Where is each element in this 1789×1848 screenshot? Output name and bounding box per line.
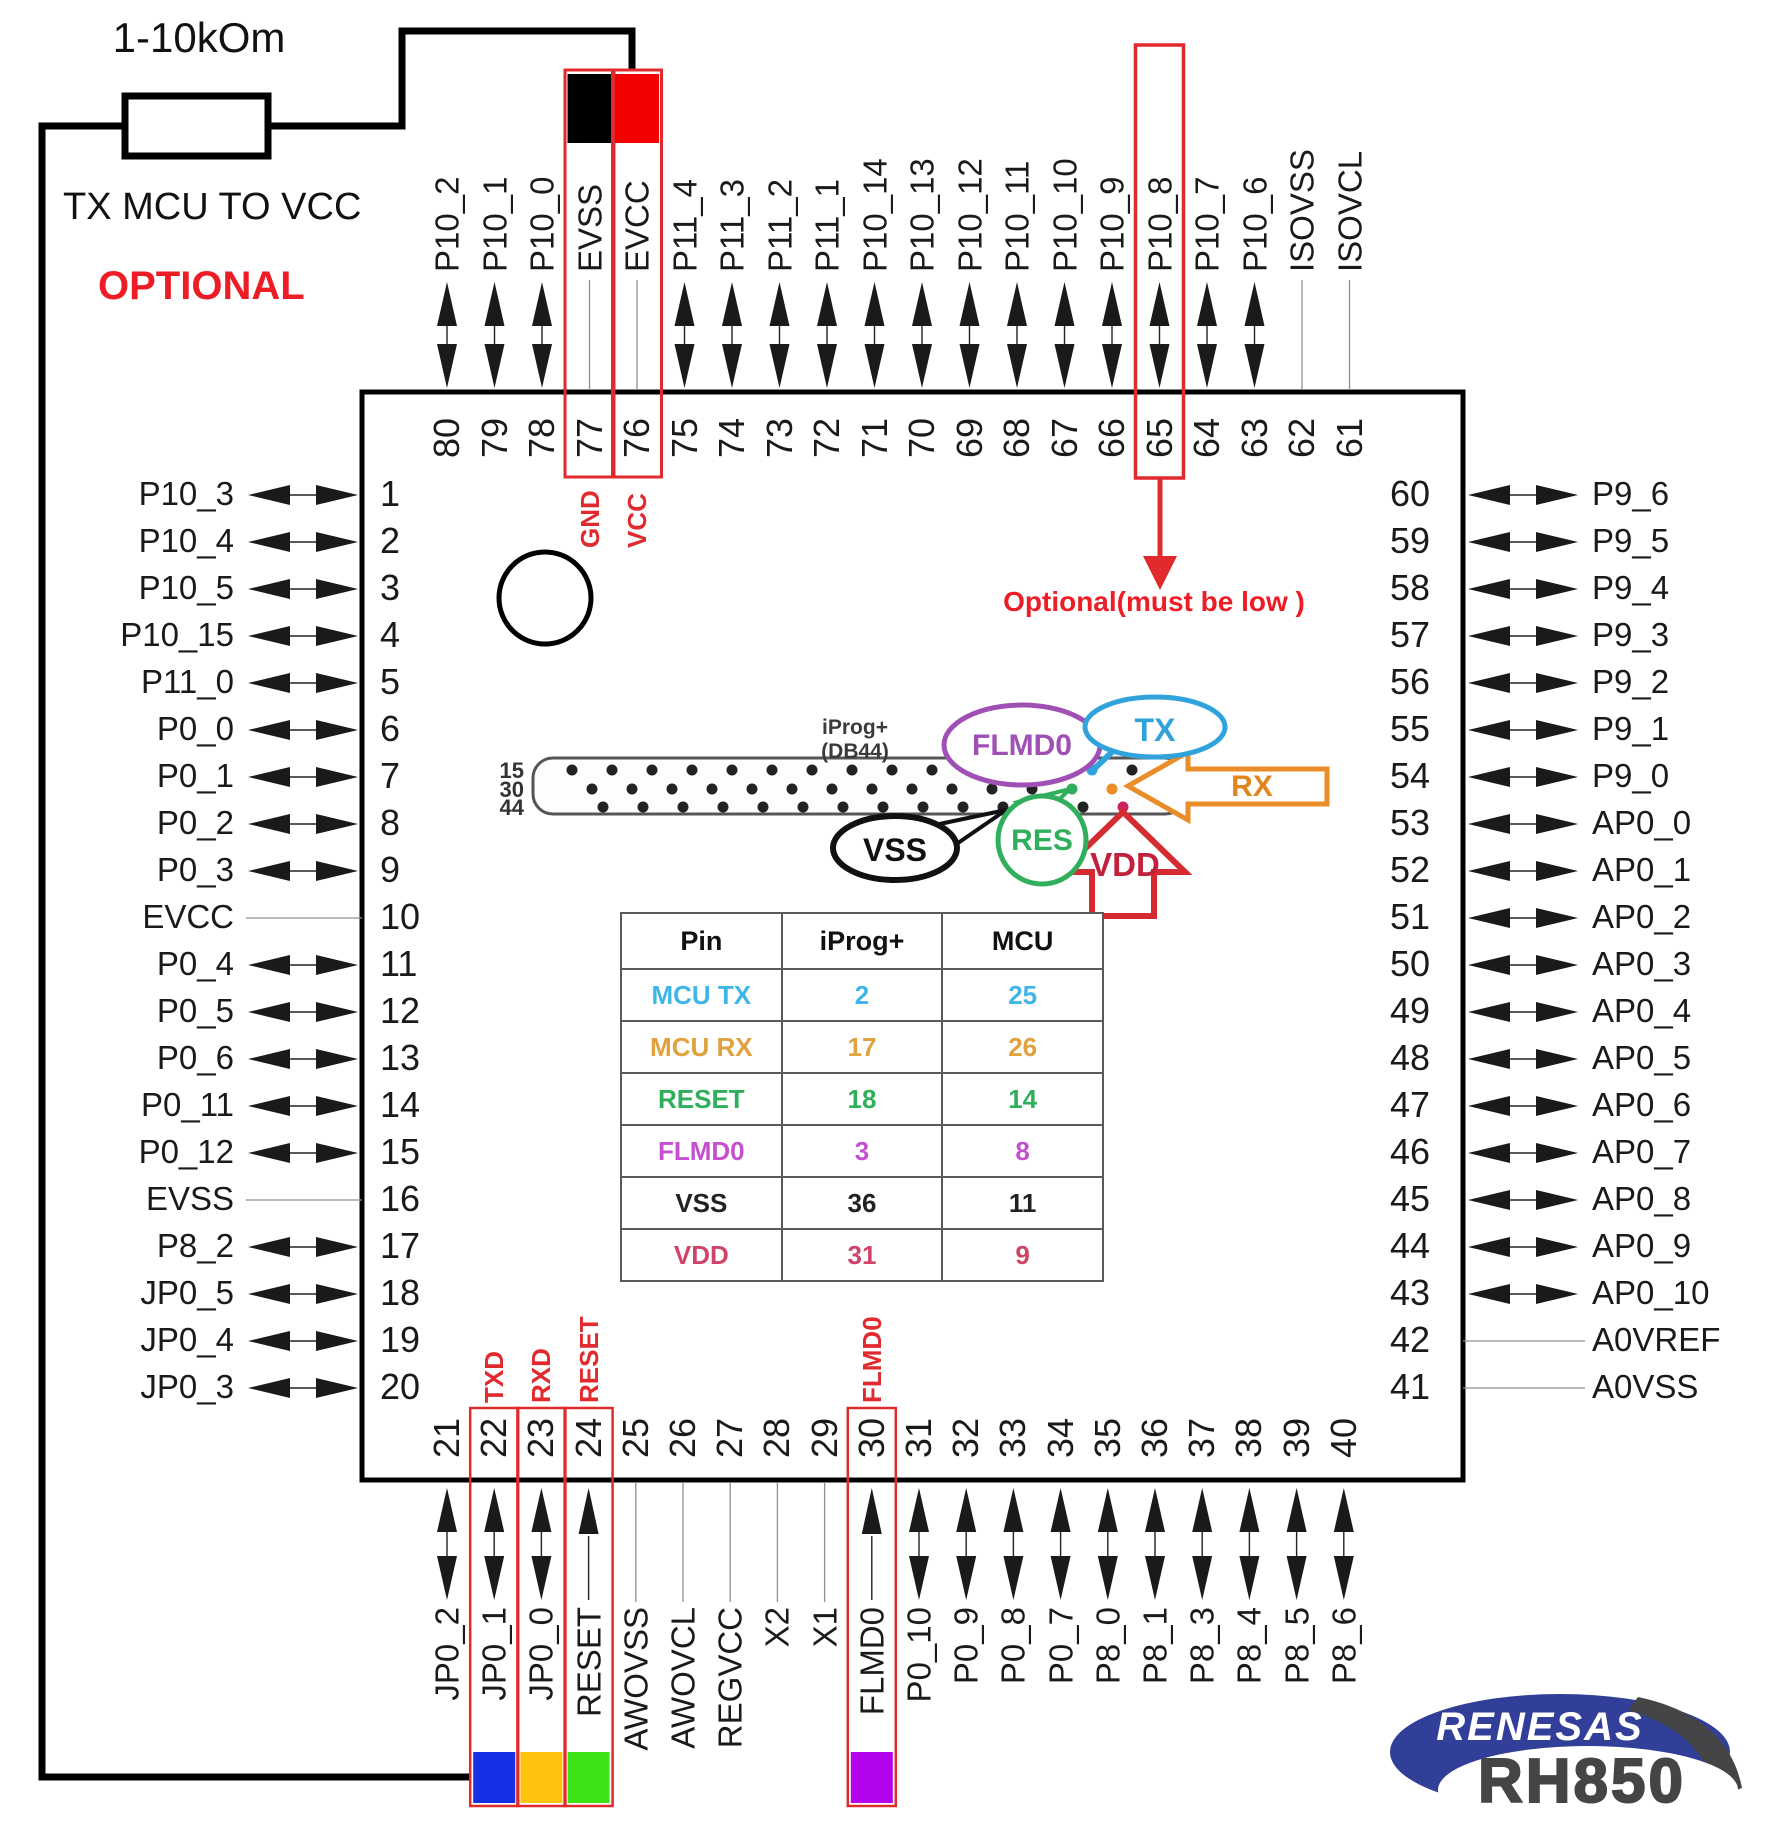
- callout-vdd: VDD: [1073, 846, 1177, 884]
- pin-right-number-48: 48: [1378, 1040, 1430, 1076]
- pin-map-row: FLMD038: [621, 1125, 1103, 1177]
- pin-right-label-AP0_2: AP0_2: [1592, 900, 1691, 933]
- pin-bottom-number-24: 24: [571, 1418, 607, 1458]
- pin-map-cell: 14: [942, 1073, 1103, 1125]
- pin-map-cell: 25: [942, 969, 1103, 1021]
- pin-top-label-P10_2: P10_2: [431, 177, 464, 272]
- pin-bottom-number-39: 39: [1279, 1418, 1315, 1458]
- pin-bottom-label-FLMD0: FLMD0: [855, 1607, 888, 1715]
- pin-left-number-13: 13: [380, 1040, 432, 1076]
- pin-left-number-15: 15: [380, 1134, 432, 1170]
- pin-bottom-number-28: 28: [759, 1418, 795, 1458]
- pin-right-label-AP0_9: AP0_9: [1592, 1229, 1691, 1262]
- pin-top-label-P10_1: P10_1: [478, 177, 511, 272]
- pin-top-label-ISOVSS: ISOVSS: [1286, 149, 1319, 272]
- pin-bottom-label-REGVCC: REGVCC: [714, 1607, 747, 1748]
- pin-map-cell: 8: [942, 1125, 1103, 1177]
- pin-bottom-label-X1: X1: [808, 1607, 841, 1647]
- pin-left-label-JP0_5: JP0_5: [0, 1276, 234, 1309]
- wire-note-label: TX MCU TO VCC: [63, 186, 361, 229]
- pin-map-cell: 26: [942, 1021, 1103, 1073]
- pin-top-label-P11_1: P11_1: [811, 179, 844, 272]
- pin-left-label-P8_2: P8_2: [0, 1229, 234, 1262]
- pin-bottom-number-40: 40: [1326, 1418, 1362, 1458]
- pin-top-label-ISOVCL: ISOVCL: [1333, 151, 1366, 272]
- pin-bottom-number-23: 23: [523, 1418, 559, 1458]
- pin-bottom-label-P0_7: P0_7: [1044, 1607, 1077, 1684]
- pin-bottom-label-JP0_2: JP0_2: [431, 1607, 464, 1701]
- pin-top-label-P10_10: P10_10: [1048, 158, 1081, 272]
- pin-left-label-P0_11: P0_11: [0, 1088, 234, 1121]
- pin-right-label-AP0_0: AP0_0: [1592, 806, 1691, 839]
- pin-bottom-tag-RXD: RXD: [528, 1348, 554, 1403]
- pin-right-number-52: 52: [1378, 852, 1430, 888]
- pin-top-label-P11_2: P11_2: [763, 179, 796, 272]
- pin-bottom-number-36: 36: [1137, 1418, 1173, 1458]
- pin-left-label-P10_3: P10_3: [0, 477, 234, 510]
- pin-left-number-6: 6: [380, 711, 432, 747]
- pin-right-number-42: 42: [1378, 1322, 1430, 1358]
- pin-map-cell: 18: [782, 1073, 943, 1125]
- pin-left-label-EVSS: EVSS: [0, 1182, 234, 1215]
- pin-top-tag-VCC: VCC: [624, 493, 650, 548]
- pin-top-number-79: 79: [477, 418, 513, 458]
- pin-top-label-EVCC: EVCC: [621, 180, 654, 272]
- pin-right-number-58: 58: [1378, 570, 1430, 606]
- diagram-text-layer: 1-10kOm TX MCU TO VCC OPTIONAL Optional(…: [0, 0, 1789, 1848]
- pin-top-number-66: 66: [1094, 418, 1130, 458]
- pin-left-number-10: 10: [380, 899, 432, 935]
- pin-bottom-number-34: 34: [1043, 1418, 1079, 1458]
- pin-left-label-P0_1: P0_1: [0, 759, 234, 792]
- pin-right-label-AP0_6: AP0_6: [1592, 1088, 1691, 1121]
- pin-left-number-11: 11: [380, 946, 432, 982]
- pin-top-label-P10_0: P10_0: [526, 177, 559, 272]
- pin-right-number-59: 59: [1378, 523, 1430, 559]
- pin-left-label-JP0_3: JP0_3: [0, 1370, 234, 1403]
- pin-left-number-16: 16: [380, 1181, 432, 1217]
- pin-right-label-AP0_1: AP0_1: [1592, 853, 1691, 886]
- pin-right-number-43: 43: [1378, 1275, 1430, 1311]
- pin-top-number-72: 72: [809, 418, 845, 458]
- pin-bottom-number-27: 27: [712, 1418, 748, 1458]
- pin-left-label-P10_15: P10_15: [0, 618, 234, 651]
- pin-map-cell: 2: [782, 969, 943, 1021]
- pin-bottom-tag-TXD: TXD: [481, 1351, 507, 1403]
- pin-top-number-73: 73: [762, 418, 798, 458]
- pin65-optional-note: Optional(must be low ): [980, 586, 1328, 618]
- callout-tx: TX: [1113, 712, 1197, 749]
- pin-map-cell: 17: [782, 1021, 943, 1073]
- pin-map-cell: 9: [942, 1229, 1103, 1281]
- pin-right-number-57: 57: [1378, 617, 1430, 653]
- pin-top-label-P10_11: P10_11: [1001, 161, 1034, 272]
- connector-row-label-44: 44: [482, 795, 524, 821]
- pin-top-label-P10_8: P10_8: [1143, 177, 1176, 272]
- pin-bottom-number-30: 30: [854, 1418, 890, 1458]
- pin-left-number-1: 1: [380, 476, 432, 512]
- pin-bottom-label-X2: X2: [761, 1607, 794, 1647]
- pin-map-row: MCU RX1726: [621, 1021, 1103, 1073]
- pin-left-number-17: 17: [380, 1228, 432, 1264]
- pin-left-number-5: 5: [380, 664, 432, 700]
- pin-top-number-61: 61: [1332, 418, 1368, 458]
- pin-bottom-label-JP0_1: JP0_1: [478, 1607, 511, 1701]
- optional-note-label: OPTIONAL: [98, 264, 305, 309]
- pin-right-number-50: 50: [1378, 946, 1430, 982]
- pin-right-label-AP0_10: AP0_10: [1592, 1276, 1709, 1309]
- pin-right-label-P9_4: P9_4: [1592, 571, 1669, 604]
- callout-flmd0: FLMD0: [952, 729, 1092, 763]
- pin-left-label-P0_4: P0_4: [0, 947, 234, 980]
- pin-map-header-cell: Pin: [621, 913, 782, 969]
- pin-top-number-69: 69: [952, 418, 988, 458]
- pin-left-number-19: 19: [380, 1322, 432, 1358]
- pin-top-number-76: 76: [619, 418, 655, 458]
- pin-left-number-20: 20: [380, 1369, 432, 1405]
- pin-bottom-label-P8_1: P8_1: [1139, 1607, 1172, 1684]
- pin-top-number-68: 68: [999, 418, 1035, 458]
- pin-right-number-51: 51: [1378, 899, 1430, 935]
- pin-bottom-label-P8_4: P8_4: [1233, 1607, 1266, 1684]
- pin-bottom-label-JP0_0: JP0_0: [525, 1607, 558, 1701]
- pin-map-cell: MCU RX: [621, 1021, 782, 1073]
- pin-map-table: PiniProg+MCUMCU TX225MCU RX1726RESET1814…: [620, 912, 1104, 1282]
- pin-bottom-label-AWOVCL: AWOVCL: [667, 1607, 700, 1749]
- pin-right-number-47: 47: [1378, 1087, 1430, 1123]
- pin-map-row: VDD319: [621, 1229, 1103, 1281]
- pin-bottom-label-AWOVSS: AWOVSS: [619, 1607, 652, 1751]
- pin-left-number-3: 3: [380, 570, 432, 606]
- pin-bottom-number-21: 21: [429, 1418, 465, 1458]
- pin-left-number-18: 18: [380, 1275, 432, 1311]
- pin-left-number-8: 8: [380, 805, 432, 841]
- pin-top-label-P10_12: P10_12: [953, 158, 986, 272]
- pin-left-label-P0_0: P0_0: [0, 712, 234, 745]
- pin-right-number-55: 55: [1378, 711, 1430, 747]
- pin-map-table-wrap: PiniProg+MCUMCU TX225MCU RX1726RESET1814…: [620, 912, 1104, 1282]
- pin-bottom-number-38: 38: [1231, 1418, 1267, 1458]
- pin-right-number-49: 49: [1378, 993, 1430, 1029]
- pin-bottom-label-RESET: RESET: [572, 1607, 605, 1717]
- pin-left-label-P0_3: P0_3: [0, 853, 234, 886]
- pin-right-label-P9_5: P9_5: [1592, 524, 1669, 557]
- pin-left-number-12: 12: [380, 993, 432, 1029]
- pin-map-cell: 3: [782, 1125, 943, 1177]
- pin-right-number-60: 60: [1378, 476, 1430, 512]
- connector-title-line2: (DB44): [788, 740, 922, 764]
- pin-bottom-tag-FLMD0: FLMD0: [859, 1316, 885, 1403]
- pin-right-label-A0VSS: A0VSS: [1592, 1370, 1698, 1403]
- pin-left-label-P0_12: P0_12: [0, 1135, 234, 1168]
- pin-bottom-label-P0_8: P0_8: [997, 1607, 1030, 1684]
- pin-left-label-P11_0: P11_0: [0, 665, 234, 698]
- pin-top-number-77: 77: [572, 418, 608, 458]
- pin-map-cell: VDD: [621, 1229, 782, 1281]
- pin-right-label-P9_1: P9_1: [1592, 712, 1669, 745]
- pin-map-cell: FLMD0: [621, 1125, 782, 1177]
- rh850-pinout-diagram: RENESAS RH850 1-10kOm TX MCU TO VCC OPTI…: [0, 0, 1789, 1848]
- pin-bottom-number-25: 25: [618, 1418, 654, 1458]
- pin-bottom-label-P8_3: P8_3: [1186, 1607, 1219, 1684]
- pin-top-label-EVSS: EVSS: [573, 184, 606, 272]
- resistor-value-label: 1-10kOm: [106, 14, 292, 62]
- pin-right-label-P9_6: P9_6: [1592, 477, 1669, 510]
- pin-map-cell: 31: [782, 1229, 943, 1281]
- pin-bottom-label-P8_0: P8_0: [1091, 1607, 1124, 1684]
- pin-map-row: MCU TX225: [621, 969, 1103, 1021]
- pin-right-number-54: 54: [1378, 758, 1430, 794]
- pin-top-number-70: 70: [904, 418, 940, 458]
- pin-top-label-P11_3: P11_3: [716, 179, 749, 272]
- pin-top-number-80: 80: [429, 418, 465, 458]
- pin-top-number-64: 64: [1189, 418, 1225, 458]
- pin-right-label-AP0_4: AP0_4: [1592, 994, 1691, 1027]
- pin-right-label-AP0_7: AP0_7: [1592, 1135, 1691, 1168]
- pin-top-tag-GND: GND: [577, 490, 603, 548]
- pin-right-label-P9_2: P9_2: [1592, 665, 1669, 698]
- pin-left-label-EVCC: EVCC: [0, 900, 234, 933]
- pin-bottom-number-33: 33: [995, 1418, 1031, 1458]
- pin-left-label-P0_6: P0_6: [0, 1041, 234, 1074]
- pin-top-number-63: 63: [1237, 418, 1273, 458]
- pin-map-cell: 11: [942, 1177, 1103, 1229]
- pin-top-label-P10_6: P10_6: [1238, 177, 1271, 272]
- pin-left-label-JP0_4: JP0_4: [0, 1323, 234, 1356]
- pin-top-number-71: 71: [857, 418, 893, 458]
- pin-right-label-A0VREF: A0VREF: [1592, 1323, 1720, 1356]
- pin-left-number-4: 4: [380, 617, 432, 653]
- pin-top-number-62: 62: [1284, 418, 1320, 458]
- pin-map-row: RESET1814: [621, 1073, 1103, 1125]
- pin-right-label-AP0_5: AP0_5: [1592, 1041, 1691, 1074]
- pin-bottom-label-P8_5: P8_5: [1280, 1607, 1313, 1684]
- pin-right-number-45: 45: [1378, 1181, 1430, 1217]
- pin-bottom-number-32: 32: [948, 1418, 984, 1458]
- pin-top-label-P10_13: P10_13: [906, 158, 939, 272]
- pin-map-cell: 36: [782, 1177, 943, 1229]
- pin-map-cell: RESET: [621, 1073, 782, 1125]
- pin-right-number-56: 56: [1378, 664, 1430, 700]
- pin-bottom-number-26: 26: [665, 1418, 701, 1458]
- pin-bottom-number-37: 37: [1184, 1418, 1220, 1458]
- pin-map-cell: MCU TX: [621, 969, 782, 1021]
- pin-map-header-cell: iProg+: [782, 913, 943, 969]
- pin-map-header-row: PiniProg+MCU: [621, 913, 1103, 969]
- pin-left-number-14: 14: [380, 1087, 432, 1123]
- pin-left-label-P10_5: P10_5: [0, 571, 234, 604]
- pin-bottom-label-P0_10: P0_10: [903, 1607, 936, 1702]
- pin-bottom-label-P0_9: P0_9: [950, 1607, 983, 1684]
- pin-left-label-P10_4: P10_4: [0, 524, 234, 557]
- pin-top-number-75: 75: [667, 418, 703, 458]
- pin-right-number-46: 46: [1378, 1134, 1430, 1170]
- connector-title-line1: iProg+: [788, 716, 922, 740]
- pin-top-number-78: 78: [524, 418, 560, 458]
- pin-right-label-P9_3: P9_3: [1592, 618, 1669, 651]
- pin-right-number-44: 44: [1378, 1228, 1430, 1264]
- pin-right-label-P9_0: P9_0: [1592, 759, 1669, 792]
- pin-left-number-7: 7: [380, 758, 432, 794]
- callout-vss: VSS: [843, 832, 947, 869]
- pin-left-label-P0_2: P0_2: [0, 806, 234, 839]
- pin-bottom-tag-RESET: RESET: [576, 1316, 602, 1403]
- pin-right-label-AP0_8: AP0_8: [1592, 1182, 1691, 1215]
- pin-map-header-cell: MCU: [942, 913, 1103, 969]
- pin-right-number-41: 41: [1378, 1369, 1430, 1405]
- pin-right-label-AP0_3: AP0_3: [1592, 947, 1691, 980]
- pin-bottom-number-22: 22: [476, 1418, 512, 1458]
- pin-top-number-65: 65: [1142, 418, 1178, 458]
- pin-bottom-number-29: 29: [807, 1418, 843, 1458]
- pin-top-number-74: 74: [714, 418, 750, 458]
- pin-left-number-9: 9: [380, 852, 432, 888]
- pin-top-label-P10_14: P10_14: [858, 158, 891, 272]
- pin-bottom-label-P8_6: P8_6: [1327, 1607, 1360, 1684]
- pin-top-label-P10_7: P10_7: [1191, 177, 1224, 272]
- pin-map-row: VSS3611: [621, 1177, 1103, 1229]
- pin-top-label-P11_4: P11_4: [668, 179, 701, 272]
- pin-right-number-53: 53: [1378, 805, 1430, 841]
- pin-top-label-P10_9: P10_9: [1096, 177, 1129, 272]
- pin-left-label-P0_5: P0_5: [0, 994, 234, 1027]
- pin-bottom-number-35: 35: [1090, 1418, 1126, 1458]
- pin-top-number-67: 67: [1047, 418, 1083, 458]
- pin-bottom-number-31: 31: [901, 1418, 937, 1458]
- pin-left-number-2: 2: [380, 523, 432, 559]
- pin-map-cell: VSS: [621, 1177, 782, 1229]
- callout-rx: RX: [1212, 770, 1292, 804]
